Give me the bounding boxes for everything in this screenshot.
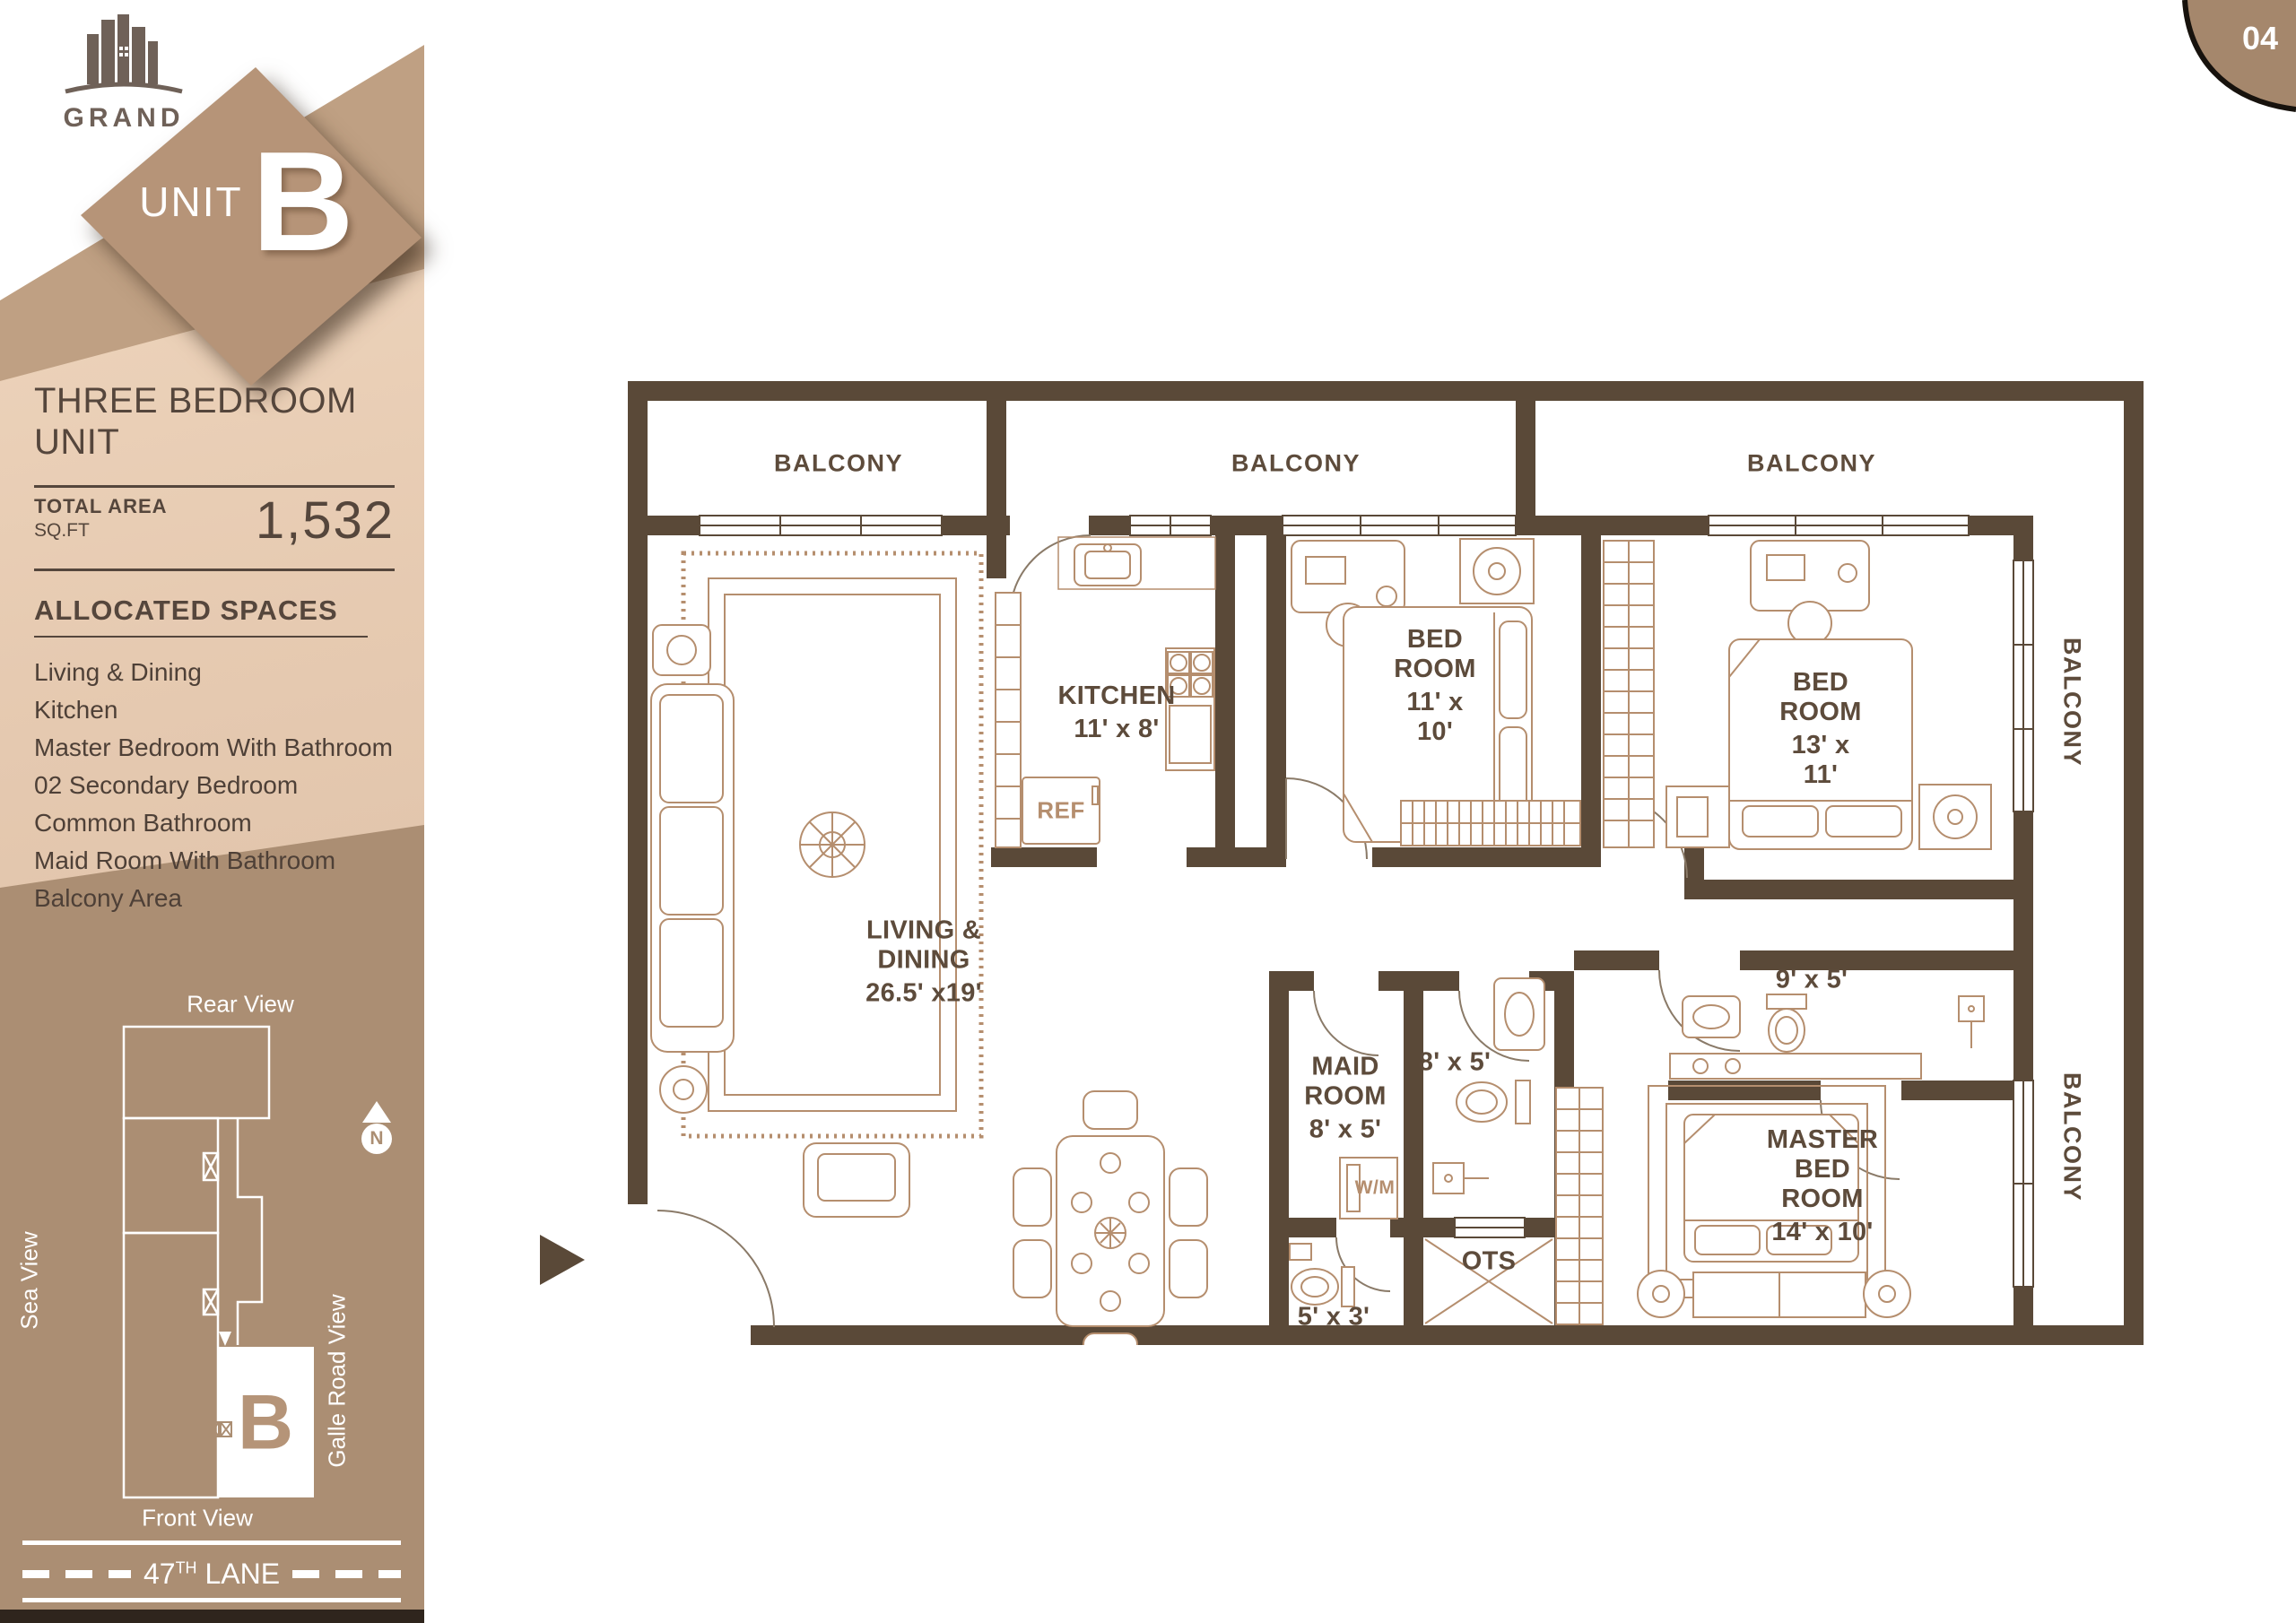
road-dash-line — [292, 1570, 401, 1578]
room-name: LIVING & DINING — [843, 916, 1004, 975]
ots-label: OTS — [1462, 1246, 1517, 1276]
maid-bathroom-dims: 5' x 3' — [1298, 1302, 1370, 1332]
list-item: Living & Dining — [34, 654, 395, 691]
lane-number: 47 — [143, 1558, 176, 1590]
rear-view-label: Rear View — [187, 991, 293, 1019]
front-view-label: Front View — [142, 1505, 253, 1532]
fridge-label: REF — [1037, 797, 1085, 825]
lane-suffix: TH — [176, 1558, 197, 1576]
room-name: KITCHEN — [1040, 681, 1193, 711]
entry-arrow-icon — [540, 1235, 585, 1285]
unit-badge: UNIT B — [108, 108, 386, 296]
galle-road-view-label: Galle Road View — [324, 1294, 352, 1467]
balcony-label-top-left: BALCONY — [774, 450, 903, 478]
divider — [34, 568, 395, 571]
divider — [34, 485, 395, 488]
room-name: BED ROOM — [1776, 668, 1865, 727]
list-item: Balcony Area — [34, 880, 395, 917]
total-area-value: 1,532 — [256, 495, 395, 547]
road-edge-line — [22, 1598, 401, 1602]
bedroom-1-label: BED ROOM 11' x 10' — [1390, 625, 1480, 747]
unit-b-marker: B — [238, 1379, 293, 1468]
sidebar-bottom-strip — [0, 1610, 424, 1623]
lane-word: LANE — [204, 1558, 280, 1590]
sidebar: UNIT B GRAND THREE BEDRO — [0, 0, 424, 1623]
floor-plan: BALCONY BALCONY BALCONY BALCONY BALCONY … — [628, 381, 2144, 1345]
master-bathroom-dims: 9' x 5' — [1776, 965, 1848, 994]
common-bathroom-dims: 8' x 5' — [1419, 1047, 1491, 1077]
building-logo-icon — [57, 11, 191, 97]
page-corner-tab: 04 — [2152, 0, 2296, 135]
room-name: MAID ROOM — [1296, 1052, 1395, 1111]
unit-word: UNIT — [139, 178, 242, 226]
divider — [34, 636, 368, 638]
master-bedroom-label: MASTER BED ROOM 14' x 10' — [1760, 1125, 1885, 1247]
brand-logo: GRAND — [52, 11, 196, 134]
brochure-page: UNIT B GRAND THREE BEDRO — [0, 0, 2296, 1623]
page-number: 04 — [2242, 20, 2278, 57]
allocated-spaces-list: Living & Dining Kitchen Master Bedroom W… — [34, 654, 395, 917]
room-dims: 13' x 11' — [1776, 731, 1865, 790]
unit-info: THREE BEDROOM UNIT TOTAL AREA SQ.FT 1,53… — [34, 380, 395, 917]
living-dining-label: LIVING & DINING 26.5' x19' — [843, 916, 1004, 1008]
compass-north-letter: N — [370, 1128, 383, 1150]
area-unit-label: SQ.FT — [34, 520, 168, 542]
list-item: Maid Room With Bathroom — [34, 842, 395, 880]
balcony-label-side-upper: BALCONY — [2058, 638, 2086, 767]
washer-label: W/M — [1355, 1177, 1396, 1199]
room-dims: 11' x 10' — [1390, 688, 1480, 747]
floor-plan-drawing — [628, 381, 2144, 1345]
list-item: Master Bedroom With Bathroom — [34, 729, 395, 767]
lane-row: 47TH LANE — [22, 1560, 401, 1587]
room-name: BED ROOM — [1390, 625, 1480, 684]
list-item: Common Bathroom — [34, 804, 395, 842]
lane-label: 47TH LANE — [143, 1558, 280, 1591]
brand-name: GRAND — [52, 103, 196, 134]
road-edge-line — [22, 1541, 401, 1545]
room-name: MASTER BED ROOM — [1760, 1125, 1885, 1214]
room-dims: 26.5' x19' — [843, 979, 1004, 1009]
maid-room-label: MAID ROOM 8' x 5' — [1296, 1052, 1395, 1144]
road-dash-line — [22, 1570, 131, 1578]
total-area-row: TOTAL AREA SQ.FT 1,532 — [34, 495, 395, 547]
balcony-label-top-middle: BALCONY — [1231, 450, 1361, 478]
bedroom-2-label: BED ROOM 13' x 11' — [1776, 668, 1865, 790]
unit-letter: B — [252, 131, 354, 273]
sea-view-label: Sea View — [16, 1231, 44, 1329]
kitchen-label: KITCHEN 11' x 8' — [1040, 681, 1193, 744]
unit-title: THREE BEDROOM UNIT — [34, 380, 395, 464]
total-area-label: TOTAL AREA — [34, 495, 168, 518]
balcony-label-side-lower: BALCONY — [2058, 1072, 2086, 1202]
list-item: 02 Secondary Bedroom — [34, 767, 395, 804]
allocated-spaces-title: ALLOCATED SPACES — [34, 595, 395, 627]
balcony-label-top-right: BALCONY — [1747, 450, 1876, 478]
list-item: Kitchen — [34, 691, 395, 729]
room-dims: 14' x 10' — [1760, 1218, 1885, 1247]
room-dims: 11' x 8' — [1040, 715, 1193, 744]
room-dims: 8' x 5' — [1296, 1115, 1395, 1145]
site-map-drawing — [0, 968, 424, 1596]
